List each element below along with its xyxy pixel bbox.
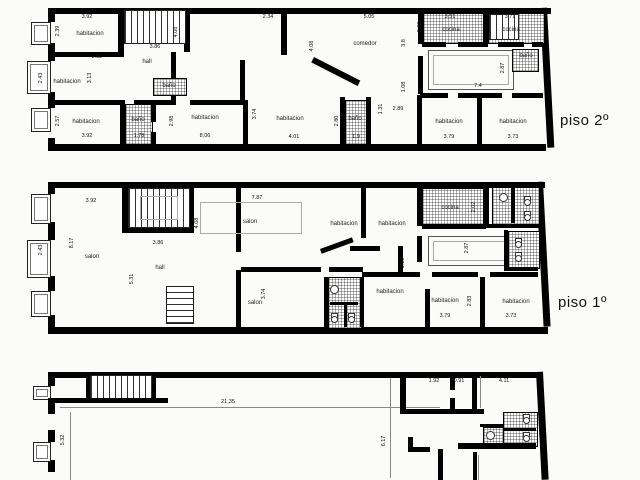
- toilet-icon: [523, 414, 530, 424]
- dimension-line: [478, 455, 479, 480]
- wall-segment: [408, 437, 413, 452]
- wall-segment: [152, 375, 156, 399]
- dim-label: 1.92: [429, 378, 440, 384]
- window-icon: [33, 442, 51, 462]
- dim-label: 2.04: [472, 387, 478, 398]
- dimension-line: [70, 412, 71, 480]
- dimension-line: [60, 407, 440, 408]
- sink-icon: [486, 431, 495, 440]
- toilet-icon: [523, 432, 530, 442]
- wall-segment: [160, 372, 170, 378]
- stairs-icon: [90, 375, 154, 400]
- wall-segment: [504, 428, 536, 431]
- dim-label: 5.32: [60, 435, 66, 446]
- floor-plan-planta-baja: 21,355.326.171.920.914.112.04: [0, 0, 640, 480]
- wall-segment: [48, 398, 168, 403]
- floor-plan-sheet: { "floors": [ { "id": "piso2", "title": …: [0, 0, 640, 480]
- wall-segment: [458, 443, 536, 449]
- dimension-line: [390, 378, 391, 478]
- wall-segment: [438, 449, 443, 480]
- dim-label: 0.91: [454, 378, 465, 384]
- dim-label: 4.11: [499, 378, 509, 384]
- wall-segment: [450, 398, 455, 414]
- wall-segment: [48, 372, 55, 386]
- wall-segment: [480, 424, 504, 427]
- wall-segment: [400, 372, 406, 414]
- dim-label: 21,35: [221, 399, 235, 405]
- dim-label: 6.17: [381, 436, 387, 447]
- wall-segment: [48, 430, 55, 442]
- wall-segment: [473, 452, 477, 480]
- dimension-line: [480, 376, 481, 408]
